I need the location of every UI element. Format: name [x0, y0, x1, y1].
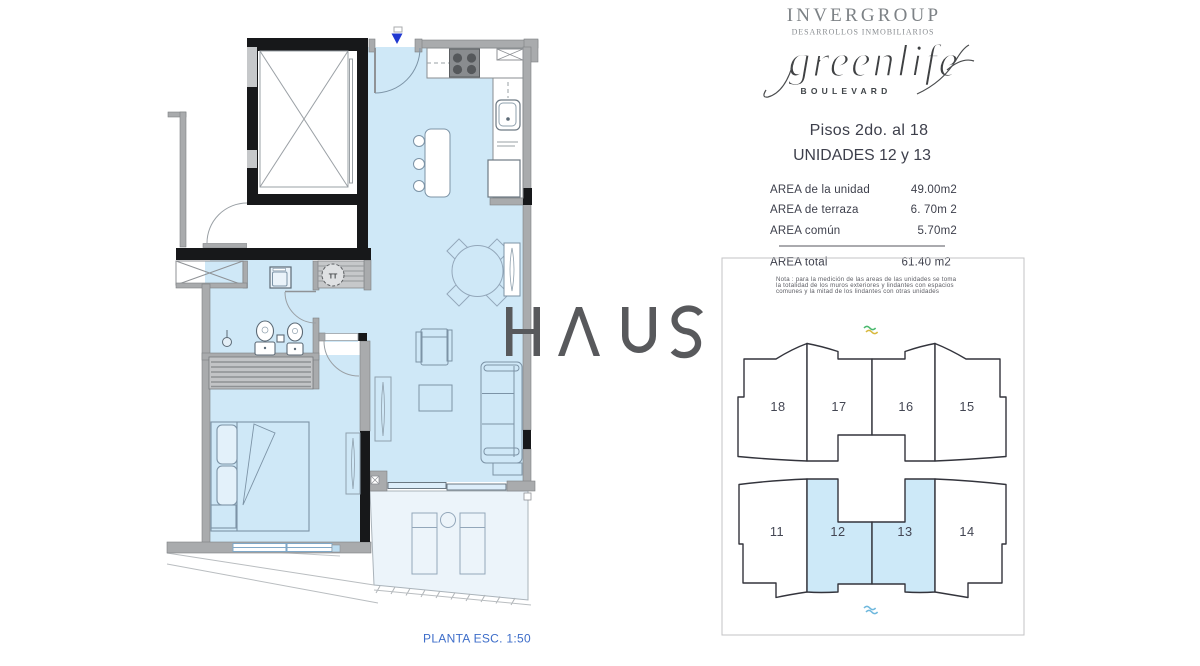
- svg-text:PLANTA ESC. 1:50: PLANTA ESC. 1:50: [423, 632, 531, 646]
- svg-text:AREA de terraza: AREA de terraza: [770, 204, 859, 216]
- svg-text:comunes y la mitad de los lind: comunes y la mitad de los lindantes con …: [776, 288, 939, 295]
- svg-text:6. 70m 2: 6. 70m 2: [911, 204, 957, 216]
- svg-text:UNIDADES 12 y 13: UNIDADES 12 y 13: [793, 147, 931, 164]
- svg-text:15: 15: [959, 399, 974, 414]
- svg-text:TT: TT: [329, 274, 338, 281]
- svg-text:16: 16: [898, 399, 913, 414]
- svg-text:18: 18: [770, 399, 785, 414]
- svg-text:Pisos 2do. al 18: Pisos 2do. al 18: [810, 122, 929, 139]
- svg-text:13: 13: [897, 524, 912, 539]
- svg-text:INVERGROUP: INVERGROUP: [787, 5, 941, 26]
- svg-text:17: 17: [831, 399, 846, 414]
- svg-text:AREA de la unidad: AREA de la unidad: [770, 184, 870, 196]
- svg-text:5.70m2: 5.70m2: [917, 225, 957, 237]
- svg-text:11: 11: [770, 524, 784, 539]
- svg-text:BOULEVARD: BOULEVARD: [800, 86, 891, 96]
- svg-text:49.00m2: 49.00m2: [911, 184, 957, 196]
- svg-text:14: 14: [959, 524, 974, 539]
- svg-text:12: 12: [830, 524, 845, 539]
- svg-text:AREA común: AREA común: [770, 225, 840, 237]
- svg-text:greenlife: greenlife: [788, 36, 960, 86]
